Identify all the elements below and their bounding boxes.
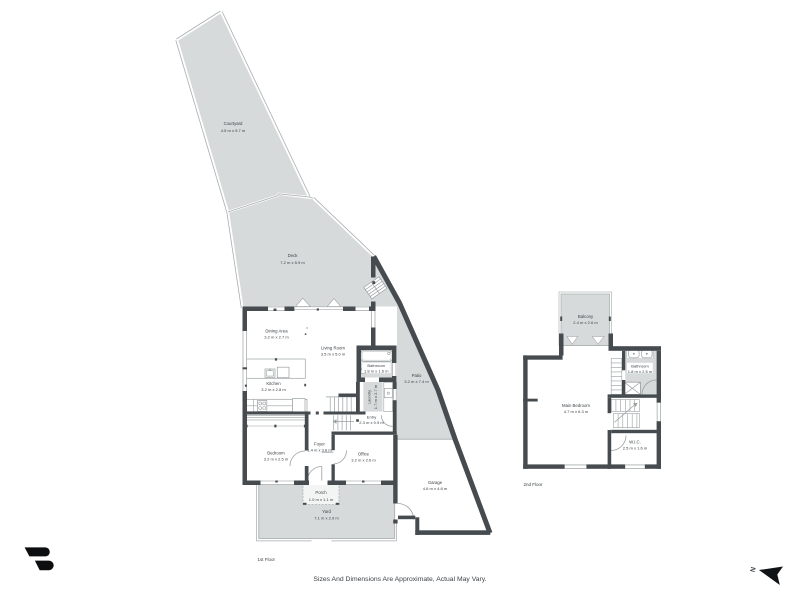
svg-text:3.2 m x 2.5 m: 3.2 m x 2.5 m: [264, 457, 289, 462]
svg-text:Foyer: Foyer: [314, 442, 326, 447]
svg-text:Entry: Entry: [367, 415, 377, 420]
svg-text:3.2 m x 7.4 m: 3.2 m x 7.4 m: [404, 379, 429, 384]
svg-text:Porch: Porch: [315, 490, 327, 495]
svg-text:Living Room: Living Room: [321, 346, 345, 351]
svg-text:4.5 m x 9.7 m: 4.5 m x 9.7 m: [221, 128, 246, 133]
svg-text:3.5 m x 5.0 m: 3.5 m x 5.0 m: [321, 352, 346, 357]
svg-text:Laundry: Laundry: [367, 390, 372, 404]
svg-text:7.2 m x 5.9 m: 7.2 m x 5.9 m: [280, 260, 305, 265]
svg-text:Deck: Deck: [288, 253, 299, 258]
svg-text:1st Floor: 1st Floor: [258, 557, 276, 562]
svg-text:7.1 m x 2.9 m: 7.1 m x 2.9 m: [314, 516, 339, 521]
svg-text:2.3 m x 0.9 m: 2.3 m x 0.9 m: [359, 420, 384, 425]
svg-text:Garage: Garage: [428, 480, 443, 485]
svg-text:3.2 m x 2.7 m: 3.2 m x 2.7 m: [264, 335, 289, 340]
svg-text:Yard: Yard: [322, 509, 331, 514]
svg-text:2.5 m x 1.6 m: 2.5 m x 1.6 m: [623, 446, 648, 451]
svg-text:2.4 m x 2.6 m: 2.4 m x 2.6 m: [573, 320, 598, 325]
svg-text:Courtyard: Courtyard: [224, 121, 243, 126]
svg-text:1.8 m x 2.5 m: 1.8 m x 2.5 m: [628, 369, 653, 374]
svg-text:1.8 m x 1.6 m: 1.8 m x 1.6 m: [364, 369, 389, 374]
svg-text:W.I.C.: W.I.C.: [629, 440, 641, 445]
svg-text:4.7 m x 6.3 m: 4.7 m x 6.3 m: [564, 409, 589, 414]
svg-text:Sizes And Dimensions Are Appro: Sizes And Dimensions Are Approximate, Ac…: [313, 576, 486, 583]
svg-text:Patio: Patio: [412, 373, 422, 378]
svg-text:4.6 m x 4.8 m: 4.6 m x 4.8 m: [423, 486, 448, 491]
svg-text:3.2 m x 2.6 m: 3.2 m x 2.6 m: [351, 458, 376, 463]
svg-text:2nd Floor: 2nd Floor: [524, 482, 544, 487]
svg-text:Bathroom: Bathroom: [367, 363, 385, 368]
svg-text:Dining Area: Dining Area: [265, 329, 288, 334]
svg-text:1.0 m x 1.1 m: 1.0 m x 1.1 m: [309, 497, 334, 502]
svg-text:1.4 m x 3.6 m: 1.4 m x 3.6 m: [307, 448, 332, 453]
svg-text:Balcony: Balcony: [578, 314, 594, 319]
svg-text:3.2 m x 2.8 m: 3.2 m x 2.8 m: [261, 387, 286, 392]
svg-text:Office: Office: [358, 452, 370, 457]
svg-text:Bathroom: Bathroom: [631, 364, 649, 369]
svg-text:Kitchen: Kitchen: [266, 381, 281, 386]
svg-text:Main Bedroom: Main Bedroom: [562, 403, 590, 408]
svg-text:1.7 m x 2.7 m: 1.7 m x 2.7 m: [373, 384, 378, 409]
svg-text:Bedroom: Bedroom: [267, 451, 285, 456]
